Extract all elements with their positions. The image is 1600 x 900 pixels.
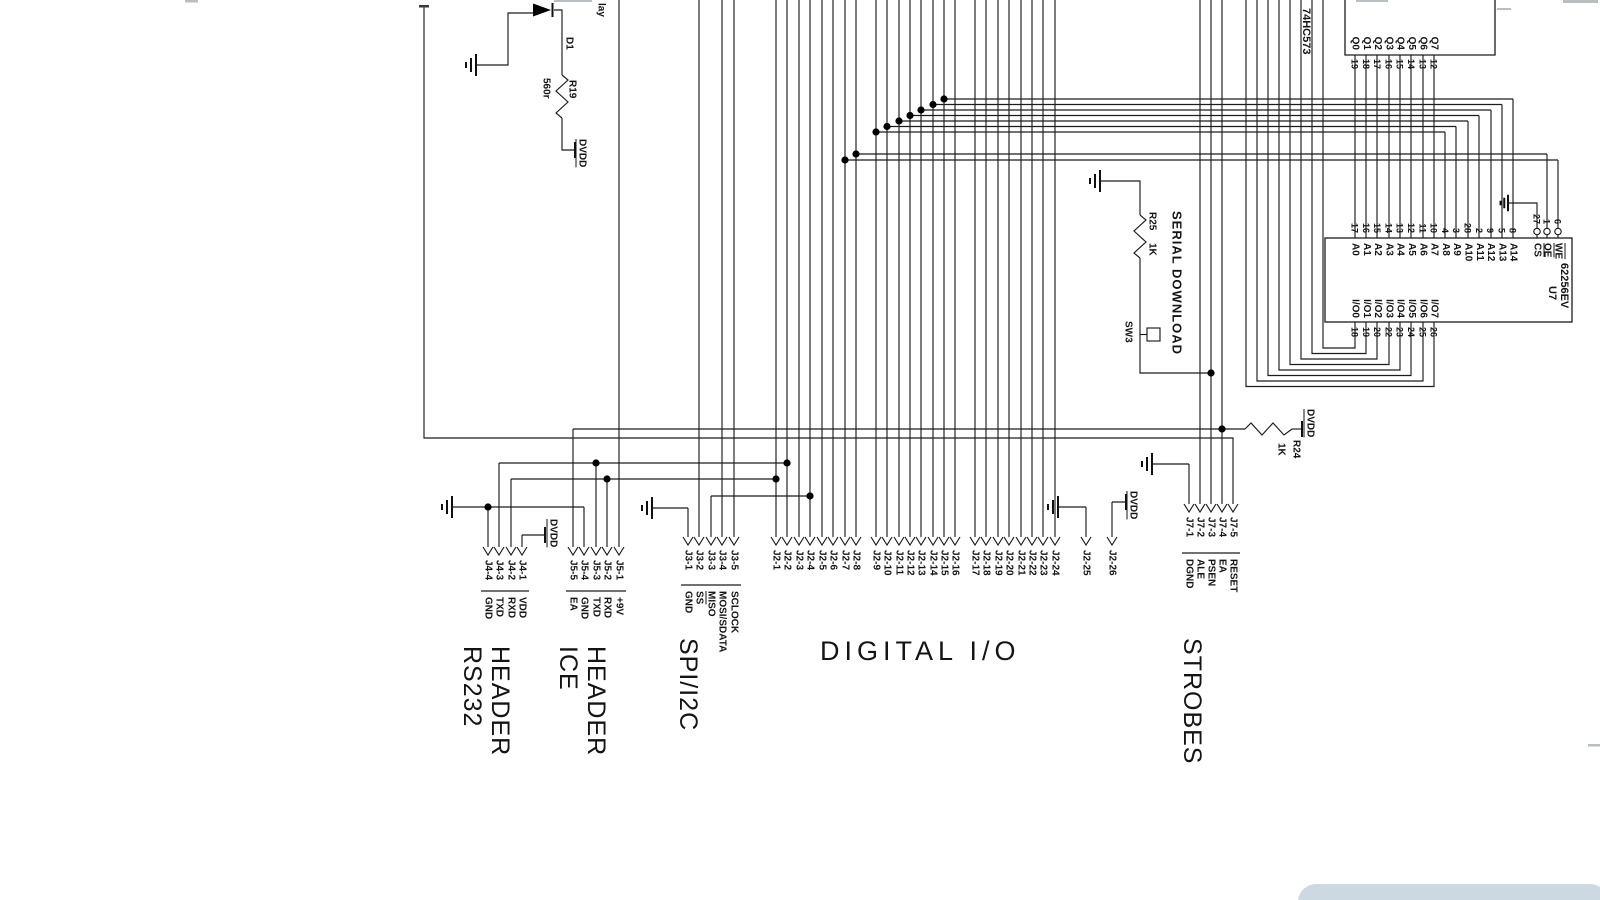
title-ice-line1: ICE <box>554 646 582 691</box>
r25-ref: R25 <box>1147 212 1158 231</box>
u7-pin-a0: A0 <box>1350 243 1361 256</box>
connector-pin-chevron <box>614 547 624 555</box>
ground-symbol <box>642 497 652 519</box>
u7-pinnum-a0: 17 <box>1350 223 1360 233</box>
connector-pin-label-j3-3: J3-3 <box>706 550 717 570</box>
ground-symbol <box>1090 170 1100 192</box>
connector-pin-chevron <box>871 537 881 545</box>
latch-pinnum-q6: 13 <box>1417 59 1427 69</box>
u7-pinnum-a6: 11 <box>1417 223 1427 233</box>
connector-pin-label-j5-2: J5-2 <box>602 560 613 580</box>
switch-sw3 <box>1147 328 1160 341</box>
connector-pin-chevron <box>1038 537 1048 545</box>
connector-pin-chevron <box>1050 537 1060 545</box>
connector-pin-chevron <box>916 537 926 545</box>
u7-pin-a2: A2 <box>1372 243 1383 256</box>
connector-pin-chevron <box>1027 537 1037 545</box>
section-titles: RS232 HEADER ICE HEADER SPI/I2C DIGITAL … <box>458 636 1206 764</box>
ground-symbol <box>1142 453 1152 475</box>
connector-pin-label-j3-2: J3-2 <box>694 550 705 570</box>
u7-pin-io4: I/O4 <box>1395 299 1406 318</box>
signal-label-j3-4: MOSI/SDATA <box>717 591 728 652</box>
connector-pin-chevron <box>993 537 1003 545</box>
connector-pin-chevron <box>729 537 739 545</box>
title-strobes: STROBES <box>1178 638 1206 764</box>
connector-pin-label-j3-4: J3-4 <box>717 550 728 570</box>
connector-pin-chevron <box>1195 504 1205 512</box>
connector-pin-chevron <box>805 537 815 545</box>
title-rs232-line2: HEADER <box>486 646 514 756</box>
connector-pin-label-j2-17: J2-17 <box>970 550 981 576</box>
u7-pin-io2: I/O2 <box>1372 299 1383 318</box>
u7-pinnum-io4: 23 <box>1395 327 1405 337</box>
u7-pinnum-a14: 8 <box>1508 228 1518 233</box>
u7-pinnum-we: 6 <box>1553 219 1563 224</box>
connector-pin-label-j2-23: J2-23 <box>1038 550 1049 576</box>
signal-label-j3-1: GND <box>683 591 694 613</box>
u7-pin-io5: I/O5 <box>1406 299 1417 318</box>
u7-pin-a11: A11 <box>1474 243 1485 261</box>
u7-pinnum-io2: 20 <box>1372 327 1382 337</box>
u7-pinnum-io3: 22 <box>1383 327 1393 337</box>
connector-pin-label-j3-5: J3-5 <box>729 550 740 570</box>
connector-pin-label-j2-3: J2-3 <box>794 550 805 570</box>
latch-pinnum-q7: 12 <box>1429 59 1439 69</box>
dvdd-label-j2-26: DVDD <box>1128 491 1139 519</box>
connector-pin-label-j2-7: J2-7 <box>840 550 851 570</box>
generated-labels: J4-4GNDJ4-3TXDJ4-2RXDJ4-1VDDJ5-5EAJ5-4GN… <box>483 37 1564 653</box>
connector-pin-label-j2-25: J2-25 <box>1081 550 1092 576</box>
u7-pin-a1: A1 <box>1361 243 1372 256</box>
signal-label-j3-2: SS <box>694 591 705 605</box>
u7-pinnum-a12: 9 <box>1485 228 1495 233</box>
sw3-ref: SW3 <box>1123 321 1134 343</box>
connector-pin-label-j2-15: J2-15 <box>939 550 950 576</box>
u7-pin-io7: I/O7 <box>1429 299 1440 318</box>
u7-pin-io1: I/O1 <box>1361 299 1372 318</box>
u7-pin-a13: A13 <box>1496 243 1507 262</box>
u7-pin-a3: A3 <box>1383 243 1394 256</box>
u7-pinnum-a8: 4 <box>1440 228 1450 233</box>
title-spi-i2c: SPI/I2C <box>674 638 702 731</box>
signal-label-j5-2: GND <box>579 597 590 619</box>
connector-pin-label-j7-2: J7-2 <box>1195 517 1206 537</box>
connector-pin-chevron <box>591 547 601 555</box>
connector-pin-chevron <box>1206 504 1216 512</box>
signal-label-j7-2: ALE <box>1195 559 1206 579</box>
connector-pin-chevron <box>1081 537 1091 545</box>
connector-pin-chevron <box>950 537 960 545</box>
signal-label-j4-3: RXD <box>506 597 517 618</box>
connector-pin-chevron <box>771 537 781 545</box>
u7-pinnum-a9: 3 <box>1451 228 1461 233</box>
connector-pin-label-j2-8: J2-8 <box>851 550 862 570</box>
signal-label-j3-3: MISO <box>706 591 717 617</box>
corner-blob-artifact <box>1298 884 1600 900</box>
u7-pin-io0: I/O0 <box>1350 299 1361 318</box>
u7-pinnum-io0: 18 <box>1350 327 1360 337</box>
connector-pin-chevron <box>817 537 827 545</box>
connector-pin-chevron <box>1107 537 1117 545</box>
connector-pin-label-j2-2: J2-2 <box>782 550 793 570</box>
resistor-r19 <box>556 75 568 118</box>
u7-pinnum-a11: 2 <box>1474 228 1484 233</box>
u7-pinnum-a2: 15 <box>1372 223 1382 233</box>
latch-pin-q7: Q7 <box>1429 37 1440 51</box>
ground-symbol <box>442 496 452 518</box>
title-rs232-line1: RS232 <box>458 646 486 727</box>
u7-pin-a14: A14 <box>1508 243 1519 262</box>
signal-label-j5-5: +9V <box>614 597 625 615</box>
connector-pin-chevron <box>794 537 804 545</box>
u7-pinnum-io5: 24 <box>1406 327 1416 337</box>
connector-pin-label-j7-3: J7-3 <box>1206 517 1217 537</box>
dvdd-label-j4: DVDD <box>548 519 559 547</box>
latch-pinnum-q1: 18 <box>1361 59 1371 69</box>
r19-ref: R19 <box>567 80 578 99</box>
connector-pin-chevron <box>1004 537 1014 545</box>
u7-pinnum-cs: 27 <box>1532 214 1542 224</box>
connector-pin-chevron <box>506 547 516 555</box>
signal-label-j5-1: EA <box>568 597 579 611</box>
u7-pinnum-a5: 12 <box>1406 223 1416 233</box>
latch-pin-q3: Q3 <box>1383 37 1394 51</box>
signal-label-j5-4: RXD <box>602 597 613 618</box>
junction-dots <box>484 95 1225 510</box>
latch-pinnum-q2: 17 <box>1372 59 1382 69</box>
connector-pin-chevron <box>694 537 704 545</box>
connector-pin-label-j5-5: J5-5 <box>568 560 579 580</box>
signal-label-j5-3: TXD <box>591 597 602 617</box>
connector-pin-label-j2-10: J2-10 <box>882 550 893 576</box>
u7-pin-a6: A6 <box>1417 243 1428 256</box>
connector-pin-chevron <box>568 547 578 555</box>
connector-pin-chevron <box>1217 504 1227 512</box>
latch-pin-q6: Q6 <box>1417 37 1428 51</box>
connector-pin-chevron <box>579 547 589 555</box>
u7-pin-a4: A4 <box>1395 243 1406 256</box>
partial-cut-label: lay <box>596 3 607 17</box>
r24-ref: R24 <box>1291 440 1302 459</box>
connector-pin-chevron <box>882 537 892 545</box>
connector-pin-label-j7-5: J7-5 <box>1228 517 1239 537</box>
connector-pin-label-j2-16: J2-16 <box>950 550 961 576</box>
connector-pin-label-j4-2: J4-2 <box>506 560 517 580</box>
signal-label-j4-1: GND <box>483 597 494 619</box>
ground-symbol <box>466 54 476 76</box>
connector-pin-chevron <box>851 537 861 545</box>
resistor-r24 <box>1245 423 1292 435</box>
u7-pinnum-io7: 26 <box>1429 327 1439 337</box>
u7-pin-a7: A7 <box>1429 243 1440 256</box>
title-ice-line2: HEADER <box>582 646 610 756</box>
connector-pin-label-j2-6: J2-6 <box>828 550 839 570</box>
connector-pin-chevron <box>717 537 727 545</box>
u7-pinnum-a1: 16 <box>1361 223 1371 233</box>
connector-pin-label-j2-5: J2-5 <box>817 550 828 570</box>
connector-pin-label-j2-18: J2-18 <box>981 550 992 576</box>
connector-pin-label-j4-3: J4-3 <box>494 560 505 580</box>
connector-pin-chevron <box>494 547 504 555</box>
connector-pin-chevron <box>970 537 980 545</box>
connector-pin-chevron <box>939 537 949 545</box>
resistor-r25 <box>1134 215 1146 258</box>
u7-pinnum-a10: 28 <box>1463 223 1473 233</box>
schematic-canvas: J4-4GNDJ4-3TXDJ4-2RXDJ4-1VDDJ5-5EAJ5-4GN… <box>0 0 1600 900</box>
dvdd-label-top: DVDD <box>577 139 588 167</box>
u7-pin-io3: I/O3 <box>1383 299 1394 318</box>
connector-pin-chevron <box>905 537 915 545</box>
connector-pin-label-j2-1: J2-1 <box>771 550 782 570</box>
u7-part-label: 62256EV <box>1558 263 1570 309</box>
u7-pinnum-io6: 25 <box>1417 327 1427 337</box>
signal-label-j7-4: EA <box>1217 559 1228 573</box>
r25-value: 1K <box>1147 243 1158 257</box>
u7-pinnum-a4: 13 <box>1395 223 1405 233</box>
u7-pin-a9: A9 <box>1451 243 1462 256</box>
connector-pin-label-j2-20: J2-20 <box>1004 550 1015 576</box>
u7-ref-label: U7 <box>1546 286 1558 300</box>
connector-pin-chevron <box>894 537 904 545</box>
connector-pin-chevron <box>1016 537 1026 545</box>
signal-label-j4-4: VDD <box>517 597 528 618</box>
u7-pin-a12: A12 <box>1485 243 1496 262</box>
u7-pin-io6: I/O6 <box>1417 299 1428 318</box>
connector-pin-label-j5-3: J5-3 <box>591 560 602 580</box>
connector-pin-label-j2-14: J2-14 <box>928 550 939 576</box>
latch-pin-q2: Q2 <box>1372 37 1383 51</box>
connector-pin-chevron <box>517 547 527 555</box>
latch-part-label: 74HC573 <box>1300 8 1312 54</box>
connector-pin-chevron <box>928 537 938 545</box>
connector-pin-label-j2-13: J2-13 <box>916 550 927 576</box>
title-digital-io: DIGITAL I/O <box>820 636 1021 666</box>
u7-pin-a8: A8 <box>1440 243 1451 256</box>
latch-pinnum-q4: 15 <box>1395 59 1405 69</box>
signal-label-j7-1: DGND <box>1184 559 1195 588</box>
connector-pin-label-j2-21: J2-21 <box>1016 550 1027 576</box>
connector-pin-chevron <box>483 547 493 555</box>
signal-label-j7-5: RESET <box>1228 559 1239 592</box>
connector-pin-label-j2-4: J2-4 <box>805 550 816 570</box>
connector-pin-label-j2-24: J2-24 <box>1050 550 1061 576</box>
signal-label-j3-5: SCLOCK <box>729 591 740 634</box>
connector-pin-chevron <box>683 537 693 545</box>
connector-pin-label-j2-11: J2-11 <box>894 550 905 575</box>
latch-pin-q4: Q4 <box>1395 37 1406 51</box>
connector-pin-label-j4-4: J4-4 <box>483 560 494 580</box>
signal-label-j7-3: PSEN <box>1206 559 1217 586</box>
connector-pin-chevron <box>981 537 991 545</box>
u7-pinnum-a13: 5 <box>1496 228 1506 233</box>
ground-symbol <box>1048 496 1058 518</box>
latch-pinnum-q3: 16 <box>1383 59 1393 69</box>
u7-pinnum-a7: 10 <box>1429 223 1439 233</box>
connector-pin-chevron <box>706 537 716 545</box>
connector-pin-label-j2-26: J2-26 <box>1107 550 1118 576</box>
connector-pin-chevron <box>602 547 612 555</box>
d1-ref: D1 <box>564 37 575 50</box>
signal-label-j4-2: TXD <box>494 597 505 617</box>
connector-pin-chevron <box>1228 504 1238 512</box>
u7-pin-a10: A10 <box>1463 243 1474 262</box>
latch-pin-q0: Q0 <box>1350 37 1361 51</box>
connector-pin-chevron <box>782 537 792 545</box>
connector-pin-label-j2-22: J2-22 <box>1027 550 1038 576</box>
connector-pin-label-j5-4: J5-4 <box>579 560 590 580</box>
page-artifacts <box>185 0 1600 900</box>
u7-pin-we: WE <box>1553 243 1564 259</box>
u7-pinnum-a3: 14 <box>1383 223 1393 233</box>
connector-pin-label-j3-1: J3-1 <box>683 550 694 570</box>
latch-pinnum-q5: 14 <box>1406 59 1416 69</box>
connector-pin-label-j7-1: J7-1 <box>1184 517 1195 537</box>
connector-pin-label-j4-1: J4-1 <box>517 560 528 580</box>
connector-pin-label-j5-1: J5-1 <box>614 560 625 580</box>
connector-pin-chevron <box>840 537 850 545</box>
latch-pinnum-q0: 19 <box>1350 59 1360 69</box>
schematic-page: J4-4GNDJ4-3TXDJ4-2RXDJ4-1VDDJ5-5EAJ5-4GN… <box>0 0 1600 900</box>
connector-pin-label-j2-19: J2-19 <box>993 550 1004 576</box>
diode-d1 <box>533 3 553 17</box>
r19-value: 560r <box>541 78 552 99</box>
u7-pin-a5: A5 <box>1406 243 1417 256</box>
u7-pinnum-io1: 19 <box>1361 327 1371 337</box>
dvdd-label-r24: DVDD <box>1305 409 1316 437</box>
r24-value: 1K <box>1276 443 1287 457</box>
latch-pin-q1: Q1 <box>1361 37 1372 51</box>
connector-pin-label-j2-12: J2-12 <box>905 550 916 576</box>
u7-pin-cs: CS <box>1532 243 1543 257</box>
connector-pin-label-j7-4: J7-4 <box>1217 517 1228 537</box>
u7-pin-oe: OE <box>1542 243 1553 258</box>
connector-pin-chevron <box>1184 504 1194 512</box>
serial-download-title: SERIAL DOWNLOAD <box>1170 211 1185 355</box>
u7-pinnum-oe: 1 <box>1542 219 1552 224</box>
connector-pin-label-j2-9: J2-9 <box>871 550 882 570</box>
latch-pin-q5: Q5 <box>1406 37 1417 51</box>
connector-pin-chevron <box>828 537 838 545</box>
